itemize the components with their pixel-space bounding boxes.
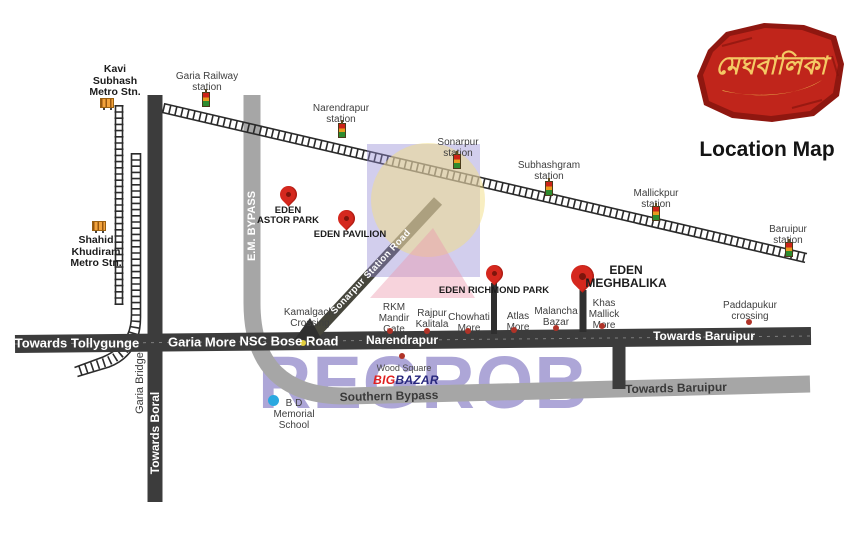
label-eden-astor-park: EDEN ASTOR PARK bbox=[257, 206, 319, 227]
station-signal-icon bbox=[545, 181, 553, 196]
label-eden-richmond-park: EDEN RICHMOND PARK bbox=[439, 286, 549, 296]
label-em-bypass: E.M. BYPASS bbox=[246, 191, 258, 261]
label-garia-more: Garia More bbox=[168, 335, 236, 350]
station-signal-icon bbox=[453, 154, 461, 169]
label-kamalgachi-crossing: Kamalgachi Crossing bbox=[284, 307, 336, 329]
label-towards-tollygunge: Towards Tollygunge bbox=[15, 336, 139, 351]
atlas-more-dot bbox=[511, 327, 517, 333]
logo-bengali-text: মেঘবালিকা bbox=[715, 50, 832, 80]
label-garia-bridge: Garia Bridge bbox=[134, 352, 146, 414]
label-bigbazar: BIGBAZAR bbox=[373, 373, 439, 387]
label-towards-baruipur-bypass: Towards Baruipur bbox=[625, 380, 727, 396]
chowhati-more-dot bbox=[465, 328, 471, 334]
label-towards-boral: Towards Boral bbox=[148, 392, 162, 474]
label-kavi-subhash-metro: Kavi Subhash Metro Stn. bbox=[89, 64, 140, 99]
label-bd-memorial-school: B D Memorial School bbox=[273, 398, 314, 431]
bigbazar-big-text: BIG bbox=[373, 373, 395, 387]
label-southern-bypass: Southern Bypass bbox=[340, 388, 439, 404]
brand-logo: মেঘবালিকা bbox=[692, 16, 850, 128]
khas-mallick-more-dot bbox=[599, 323, 605, 329]
station-signal-icon bbox=[202, 92, 210, 107]
station-signal-icon bbox=[652, 206, 660, 221]
logo-caption: Location Map bbox=[699, 138, 834, 162]
station-signal-icon bbox=[338, 123, 346, 138]
bigbazar-bazar-text: BAZAR bbox=[395, 373, 439, 387]
label-narendrapur-road: Narendrapur bbox=[366, 333, 438, 347]
label-shahid-khudiram-metro: Shahid Khudiram Metro Stn. bbox=[70, 235, 121, 270]
metro-track-straight bbox=[116, 105, 123, 305]
label-rkm-mandir-gate: RKM Mandir Gate bbox=[379, 302, 410, 335]
label-nsc-bose-road: NSC Bose Road bbox=[240, 334, 339, 349]
label-towards-baruipur-main: Towards Baruipur bbox=[653, 329, 755, 343]
metro-train-icon bbox=[92, 221, 106, 231]
label-eden-pavilion: EDEN PAVILION bbox=[314, 230, 387, 240]
label-rajpur-kalitala: Rajpur Kalitala bbox=[416, 308, 449, 330]
malancha-bazar-dot bbox=[553, 325, 559, 331]
label-eden-meghbalika: EDEN MEGHBALIKA bbox=[585, 264, 666, 290]
metro-train-icon bbox=[100, 98, 114, 108]
wood-square-dot bbox=[399, 353, 405, 359]
station-signal-icon bbox=[785, 242, 793, 257]
location-map: REGROB bbox=[0, 0, 850, 550]
label-garia-railway-station: Garia Railway station bbox=[176, 71, 238, 93]
paddapukur-crossing-dot bbox=[746, 319, 752, 325]
